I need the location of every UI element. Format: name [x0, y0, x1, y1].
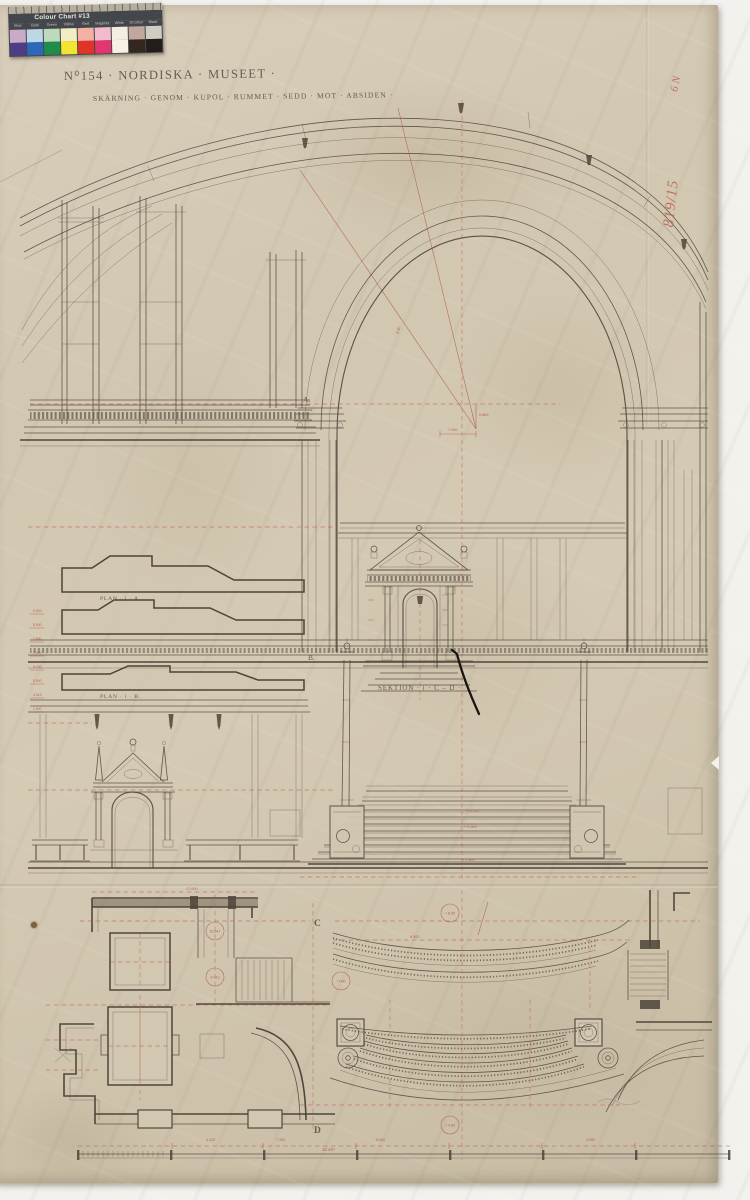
plan-cut-a: PLAN · i · A.	[62, 556, 304, 634]
plan-vestibule	[196, 909, 330, 1004]
vault-pendant	[681, 239, 687, 250]
stair-level-mid: + 5.500	[464, 825, 477, 829]
outer-vault-arch	[20, 103, 708, 363]
vault-pendant	[586, 155, 592, 166]
chart-swatch	[61, 28, 77, 41]
chart-swatch	[10, 30, 26, 43]
plan-pier-1	[110, 933, 170, 990]
level-circle: 10.547	[210, 930, 221, 934]
architectural-drawing: N⁰154 · NORDISKA · MUSEET · SKÄRNING · G…	[0, 0, 750, 1200]
pendant-drop	[169, 714, 174, 730]
plan-corner-mark	[673, 893, 690, 911]
ornament-panel-left	[270, 810, 300, 836]
section-dimension-lines: 0.889 7.000 8.80 A. B.	[28, 100, 560, 880]
scale-dim: 7.283	[276, 1138, 285, 1142]
pencil-stroke	[0, 150, 62, 182]
stair-level-top: + 5.150	[466, 809, 479, 813]
dim-plan-depth: 8.500	[410, 935, 420, 939]
level-circle: 7.000	[337, 980, 346, 984]
ornament-panel-right	[668, 788, 702, 834]
scale-total: 16.43ᵐ	[322, 1147, 336, 1152]
dim-plan-width: 17.000	[186, 887, 198, 891]
vault-pendant	[458, 103, 464, 114]
level-circle: 4.013	[211, 976, 220, 980]
lower-left-wall	[28, 700, 310, 838]
scale-dim: 2.650	[586, 1138, 595, 1142]
dim-rise: 0.889	[479, 413, 489, 417]
pendant-drop	[95, 714, 100, 730]
portal-urn-left	[371, 546, 377, 558]
section-mark-b: B.	[308, 653, 315, 662]
upper-entablature	[20, 400, 320, 446]
ground-plan: 17.000	[46, 887, 730, 1160]
sektion-cd-label: SEKTION · i · C – D ·	[378, 684, 461, 692]
chart-swatch	[27, 29, 43, 42]
chart-swatch	[44, 42, 60, 55]
scale-dim: 4.125	[206, 1138, 215, 1142]
lower-entablature	[28, 640, 708, 668]
apse-background	[338, 523, 627, 640]
left-level: 6.200	[33, 665, 42, 669]
plan-upper-step-arcs: 8.500	[333, 920, 630, 982]
chart-swatch	[129, 26, 145, 39]
chart-swatch	[112, 40, 128, 53]
left-level: 2.800	[33, 707, 42, 711]
scale-bar: 4.125 7.283 8.000 2.650 16.43ᵐ	[77, 1138, 730, 1160]
scale-dim: 8.000	[376, 1138, 385, 1142]
left-level: 9.600	[33, 609, 42, 613]
left-pier-upper	[58, 196, 306, 424]
level-circle: + 8.50	[445, 912, 455, 916]
chart-swatch	[95, 27, 111, 40]
plan-mark-c: C	[314, 919, 321, 929]
dim-half-span: 7.000	[448, 428, 458, 432]
central-portal	[361, 526, 477, 701]
arch-capital-right	[618, 408, 708, 428]
chart-swatch	[129, 39, 145, 52]
left-level: 5.500	[33, 679, 42, 683]
pendant-drop	[217, 714, 222, 730]
chart-swatch	[27, 42, 43, 55]
left-level-column: 9.600 8.500 7.600 7.000 6.200 5.500 4.01…	[30, 609, 44, 712]
chart-title: Colour Chart #13	[34, 13, 90, 22]
color-chart: Colour Chart #13 BlueCyanGreenYellowRedM…	[8, 3, 163, 57]
plan-cut-b: PLAN · i · B.	[62, 666, 304, 700]
plan-top-wall: 17.000	[92, 887, 258, 932]
title-block: N⁰154 · NORDISKA · MUSEET · SKÄRNING · G…	[64, 66, 394, 103]
plan-b-label: PLAN · i · B.	[100, 694, 141, 700]
pencil-scribble	[598, 1099, 640, 1105]
plan-curved-wall	[251, 1028, 306, 1120]
chart-swatch	[95, 40, 111, 53]
chart-swatch	[146, 39, 162, 52]
plan-column-base-right	[575, 1019, 618, 1068]
plan-right-wall	[606, 890, 712, 1112]
plan-small-square	[200, 1034, 224, 1058]
chart-swatch	[44, 29, 60, 42]
left-portal	[90, 739, 178, 868]
level-circle: + 4.89	[445, 1124, 455, 1128]
dim-radial: 8.80	[395, 326, 401, 334]
main-arch	[294, 200, 708, 652]
sheet-subtitle: SKÄRNING · GENOM · KUPOL · RUMMET · SEDD…	[93, 90, 394, 103]
chart-swatch	[61, 41, 77, 54]
plan-mark-d: D	[314, 1126, 321, 1136]
chart-swatch	[112, 27, 128, 40]
chart-swatch	[78, 28, 94, 41]
stair-level-base: + 2.800	[462, 858, 475, 862]
left-level: 8.500	[33, 623, 42, 627]
chart-swatch	[10, 43, 26, 56]
candelabrum-right	[570, 638, 604, 858]
candelabrum-left	[330, 638, 364, 858]
chart-swatch	[146, 26, 162, 39]
chart-swatch	[78, 41, 94, 54]
left-level: 4.013	[33, 693, 42, 697]
vault-pendant	[302, 138, 308, 149]
portal-urn-right	[461, 546, 467, 558]
sheet-title: N⁰154 · NORDISKA · MUSEET ·	[64, 66, 277, 83]
